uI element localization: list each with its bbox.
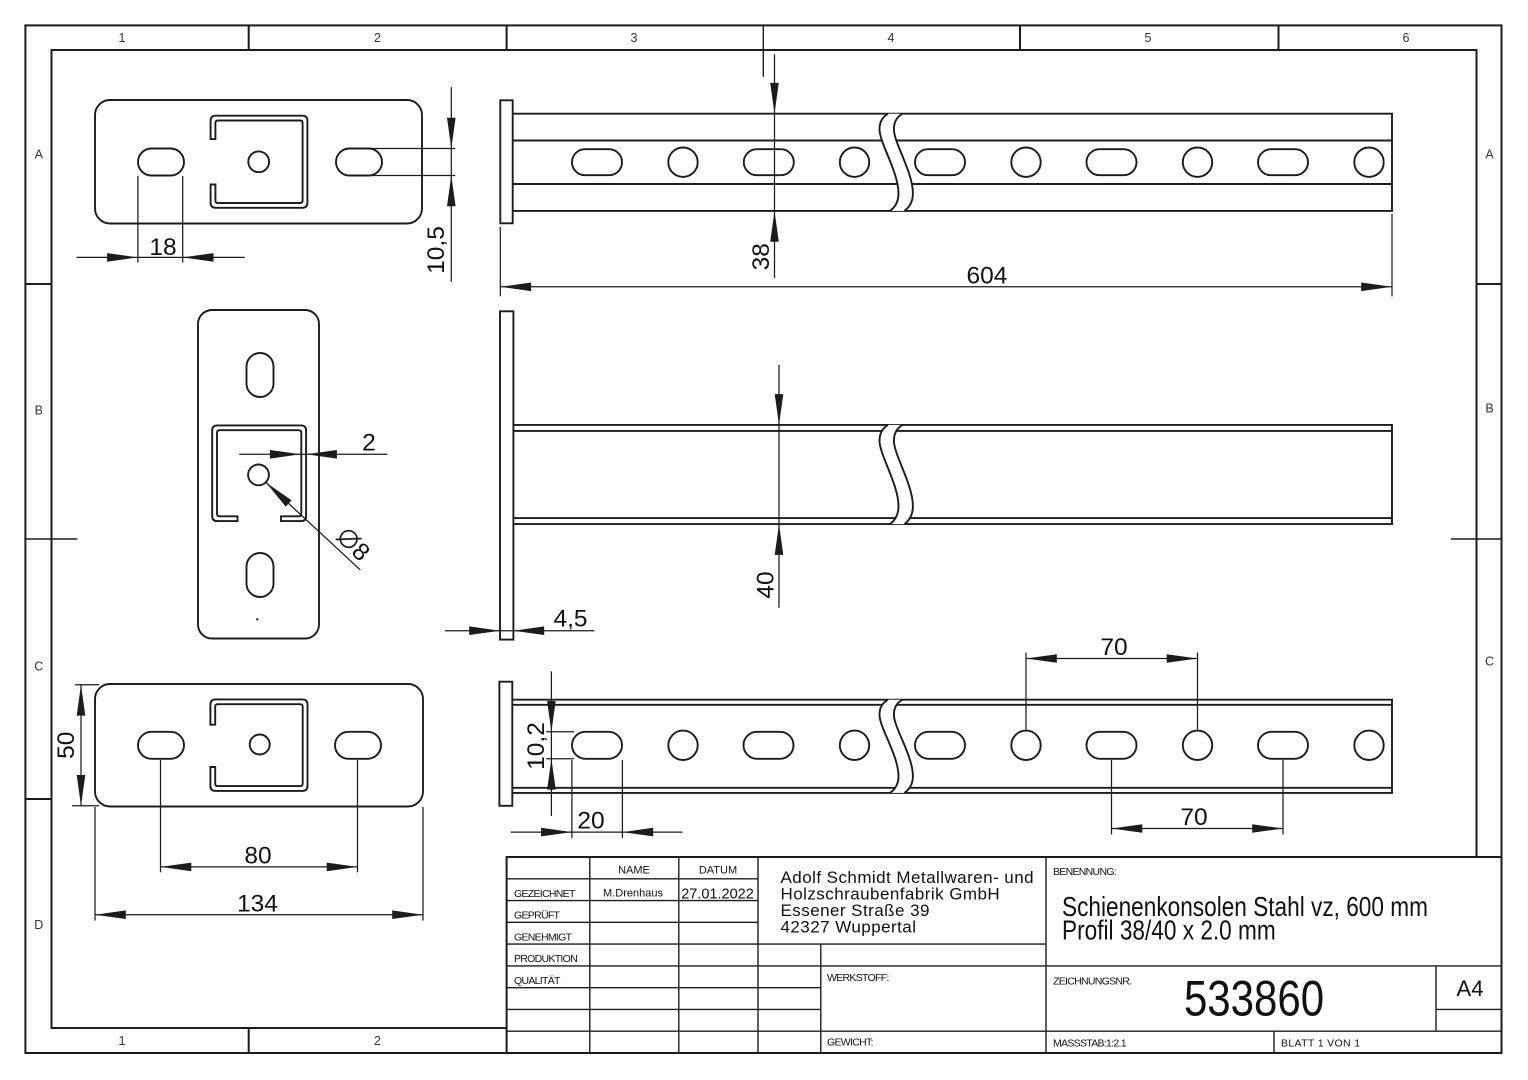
svg-text:70: 70 [1180, 804, 1207, 831]
svg-text:1: 1 [119, 31, 126, 45]
svg-text:A: A [35, 148, 44, 162]
svg-text:Profil 38/40 x 2.0 mm: Profil 38/40 x 2.0 mm [1062, 915, 1276, 946]
svg-text:D: D [34, 918, 43, 932]
svg-text:10,5: 10,5 [423, 226, 450, 274]
svg-text:2: 2 [374, 31, 381, 45]
svg-text:604: 604 [967, 262, 1008, 289]
svg-text:5: 5 [1145, 31, 1152, 45]
svg-text:BLATT 1 VON 1: BLATT 1 VON 1 [1281, 1037, 1360, 1049]
svg-text:PRODUKTION: PRODUKTION [514, 953, 577, 965]
svg-text:18: 18 [149, 234, 176, 261]
svg-text:38: 38 [748, 243, 775, 270]
svg-text:533860: 533860 [1184, 970, 1324, 1026]
svg-text:50: 50 [53, 732, 80, 759]
svg-text:2: 2 [374, 1034, 381, 1048]
svg-text:GEWICHT:: GEWICHT: [827, 1037, 873, 1049]
svg-text:134: 134 [237, 890, 278, 917]
svg-text:WERKSTOFF:: WERKSTOFF: [827, 972, 889, 984]
svg-text:6: 6 [1403, 31, 1410, 45]
svg-text:2: 2 [362, 429, 376, 456]
svg-text:GEPRÜFT: GEPRÜFT [514, 910, 561, 922]
svg-text:A: A [1485, 148, 1494, 162]
svg-text:4: 4 [888, 31, 895, 45]
svg-text:QUALITÄT: QUALITÄT [514, 975, 561, 987]
svg-text:27.01.2022: 27.01.2022 [681, 887, 754, 903]
svg-text:ZEICHNUNGSNR.: ZEICHNUNGSNR. [1053, 976, 1131, 988]
svg-text:70: 70 [1100, 634, 1127, 661]
svg-text:B: B [35, 404, 43, 418]
svg-text:C: C [34, 660, 43, 674]
svg-text:42327 Wuppertal: 42327 Wuppertal [781, 918, 917, 937]
svg-text:3: 3 [631, 31, 638, 45]
svg-text:4,5: 4,5 [553, 606, 587, 633]
svg-text:40: 40 [753, 571, 780, 598]
svg-text:GEZEICHNET: GEZEICHNET [514, 888, 576, 900]
svg-text:DATUM: DATUM [699, 865, 737, 877]
svg-text:80: 80 [244, 843, 271, 870]
svg-text:20: 20 [577, 807, 604, 834]
svg-text:BENENNUNG:: BENENNUNG: [1053, 866, 1116, 878]
svg-text:MASSSTAB:1:2.1: MASSSTAB:1:2.1 [1053, 1037, 1127, 1049]
svg-text:B: B [1485, 402, 1493, 416]
svg-text:M.Drenhaus: M.Drenhaus [603, 888, 663, 900]
svg-text:1: 1 [119, 1034, 126, 1048]
svg-text:A4: A4 [1457, 976, 1484, 1001]
svg-text:C: C [1485, 655, 1494, 669]
svg-text:NAME: NAME [618, 865, 650, 877]
svg-text:GENEHMIGT: GENEHMIGT [514, 931, 573, 943]
svg-text:10,2: 10,2 [523, 722, 550, 770]
